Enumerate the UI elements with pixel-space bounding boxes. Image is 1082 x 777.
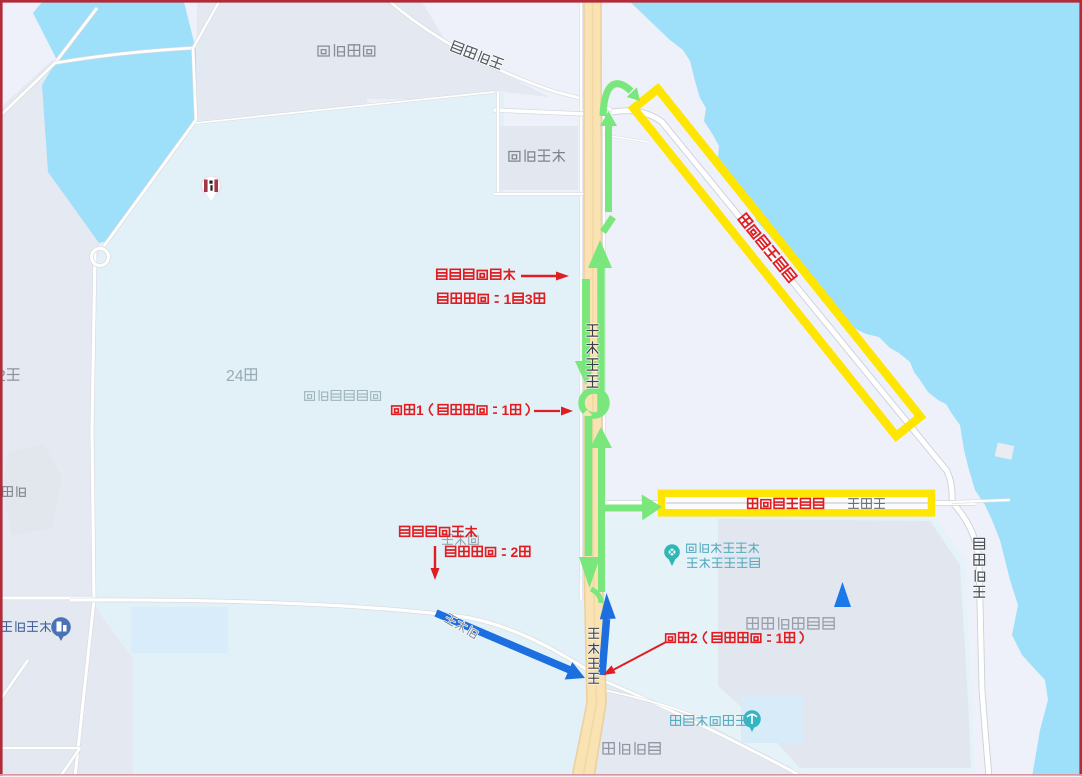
- svg-text:1: 1: [502, 403, 510, 418]
- svg-text:1: 1: [776, 631, 784, 646]
- svg-text:2: 2: [690, 631, 698, 646]
- svg-text:1: 1: [416, 403, 424, 418]
- svg-text:2: 2: [226, 368, 235, 385]
- svg-text:4: 4: [235, 368, 244, 385]
- svg-text:1: 1: [504, 292, 512, 308]
- svg-text:2: 2: [511, 544, 519, 560]
- svg-text:3: 3: [525, 292, 533, 308]
